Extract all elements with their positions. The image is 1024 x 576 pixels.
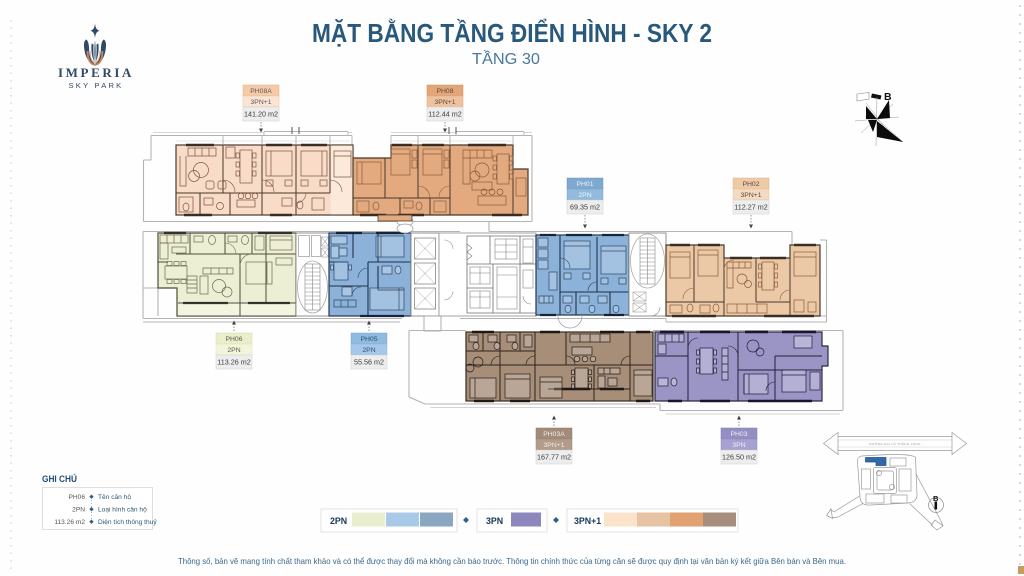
svg-text:B: B (884, 91, 892, 103)
svg-text:TẦNG 30: TẦNG 30 (472, 49, 540, 68)
svg-text:Thông số, bản vẽ mang tính chấ: Thông số, bản vẽ mang tính chất tham khả… (178, 556, 846, 566)
svg-text:Diện tích thông thuỷ: Diện tích thông thuỷ (98, 519, 157, 526)
svg-text:167.77 m2: 167.77 m2 (537, 453, 571, 462)
svg-text:2PN: 2PN (227, 347, 240, 354)
svg-text:69.35 m2: 69.35 m2 (570, 203, 600, 212)
svg-text:PH03A: PH03A (543, 431, 565, 438)
svg-text:PH03: PH03 (730, 431, 747, 438)
svg-text:Tên căn hộ: Tên căn hộ (98, 494, 131, 501)
svg-text:113.26 m2: 113.26 m2 (54, 519, 85, 526)
svg-text:3PN+1: 3PN+1 (574, 516, 601, 526)
svg-text:IMPERIA: IMPERIA (58, 65, 134, 80)
svg-text:112.27 m2: 112.27 m2 (734, 203, 767, 212)
svg-text:PH01: PH01 (576, 181, 593, 188)
svg-text:2PN: 2PN (72, 507, 85, 514)
svg-text:3PN+1: 3PN+1 (251, 99, 272, 106)
svg-text:ĐƯỜNG ĐẠI LỘ THĂNG LONG: ĐƯỜNG ĐẠI LỘ THĂNG LONG (869, 441, 921, 446)
svg-text:3PN+1: 3PN+1 (741, 192, 762, 199)
svg-text:PH06: PH06 (225, 336, 242, 343)
svg-text:MẶT BẰNG TẦNG ĐIỂN HÌNH - SKY: MẶT BẰNG TẦNG ĐIỂN HÌNH - SKY 2 (312, 19, 712, 48)
svg-text:2PN: 2PN (578, 192, 591, 199)
svg-text:PH02: PH02 (742, 181, 759, 188)
svg-text:112.44 m2: 112.44 m2 (428, 110, 461, 119)
svg-text:GHI CHÚ: GHI CHÚ (42, 473, 77, 484)
svg-text:SKY PARK: SKY PARK (69, 81, 124, 90)
svg-text:2PN: 2PN (330, 516, 347, 526)
svg-text:Loại hình căn hộ: Loại hình căn hộ (98, 507, 147, 514)
svg-text:3PN+1: 3PN+1 (435, 99, 456, 106)
svg-text:126.50 m2: 126.50 m2 (722, 453, 756, 462)
svg-text:PH08: PH08 (436, 88, 453, 95)
svg-text:PH08A: PH08A (250, 88, 272, 95)
svg-text:2PN: 2PN (362, 347, 375, 354)
svg-text:3PN: 3PN (732, 442, 745, 449)
svg-text:55.56 m2: 55.56 m2 (354, 358, 384, 367)
svg-text:PH06: PH06 (69, 494, 86, 501)
svg-text:3PN+1: 3PN+1 (544, 442, 565, 449)
svg-text:141.20 m2: 141.20 m2 (244, 110, 278, 119)
svg-text:3PN: 3PN (486, 516, 503, 526)
svg-text:113.26 m2: 113.26 m2 (217, 358, 250, 367)
svg-text:PH05: PH05 (360, 336, 377, 343)
